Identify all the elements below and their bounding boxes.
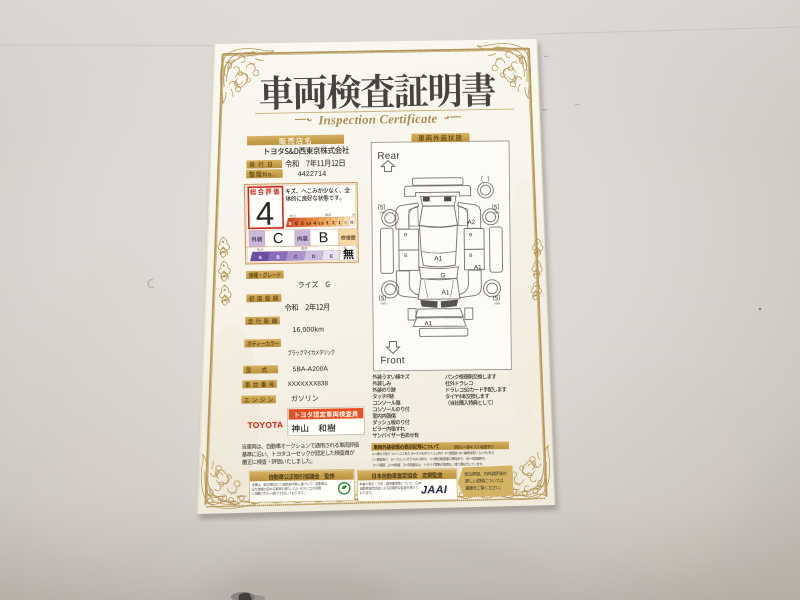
svg-text:mm: mm — [494, 210, 500, 214]
svg-text:Rear: Rear — [377, 151, 400, 162]
svg-text:4.5: 4.5 — [306, 222, 311, 226]
svg-text:4422714: 4422714 — [298, 169, 327, 178]
svg-text:B: B — [404, 232, 407, 238]
svg-text:4: 4 — [256, 195, 275, 232]
svg-text:B: B — [404, 253, 407, 259]
svg-text:mm: mm — [380, 210, 386, 214]
svg-text:Front: Front — [380, 355, 404, 366]
svg-text:E: E — [330, 254, 333, 259]
svg-text:G: G — [440, 272, 445, 279]
svg-text:S: S — [288, 221, 291, 226]
svg-text:A2: A2 — [467, 219, 475, 226]
svg-text:mm: mm — [495, 301, 501, 305]
svg-text:JAAI: JAAI — [421, 484, 448, 496]
svg-text:A1: A1 — [434, 255, 442, 262]
svg-text:TOYOTA: TOYOTA — [247, 420, 283, 431]
svg-text:B: B — [469, 253, 472, 259]
svg-text:A1: A1 — [424, 320, 432, 327]
svg-text:XXXXXXX838: XXXXXXX838 — [287, 380, 328, 388]
svg-text:16,000km: 16,000km — [292, 326, 324, 334]
svg-text:3.5: 3.5 — [318, 221, 323, 225]
svg-text:B: B — [319, 230, 329, 246]
svg-text:C: C — [273, 231, 284, 247]
svg-text:B: B — [469, 232, 472, 238]
svg-text:mm: mm — [381, 301, 387, 305]
svg-text:A1: A1 — [441, 289, 449, 296]
svg-text:5BA-A200A: 5BA-A200A — [293, 366, 329, 374]
svg-text:Inspection Certificate: Inspection Certificate — [317, 112, 437, 128]
